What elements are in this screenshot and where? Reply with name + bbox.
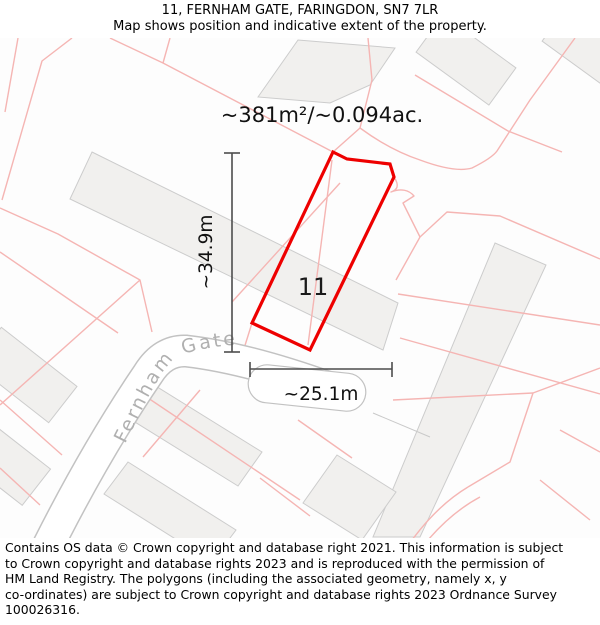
map-header: 11, FERNHAM GATE, FARINGDON, SN7 7LR Map… bbox=[0, 0, 600, 38]
property-map: Fernham Gate 11 ~381m²/~0.094ac. ~34.9m … bbox=[0, 38, 600, 538]
footer-line: HM Land Registry. The polygons (includin… bbox=[0, 571, 600, 587]
building bbox=[0, 327, 77, 422]
page-title: 11, FERNHAM GATE, FARINGDON, SN7 7LR bbox=[0, 0, 600, 19]
building bbox=[104, 462, 236, 538]
plot-number-label: 11 bbox=[298, 273, 329, 301]
building bbox=[0, 425, 51, 506]
footer-line: to Crown copyright and database rights 2… bbox=[0, 556, 600, 572]
building bbox=[416, 38, 516, 105]
vertical-dimension-label: ~34.9m bbox=[196, 215, 217, 290]
footer-line: co-ordinates) are subject to Crown copyr… bbox=[0, 587, 600, 603]
map-canvas: Fernham Gate 11 ~381m²/~0.094ac. ~34.9m … bbox=[0, 38, 600, 538]
page-subtitle: Map shows position and indicative extent… bbox=[0, 19, 600, 34]
footer-line: Contains OS data © Crown copyright and d… bbox=[0, 540, 600, 556]
horizontal-dimension-label: ~25.1m bbox=[284, 384, 359, 405]
copyright-footer: Contains OS data © Crown copyright and d… bbox=[0, 540, 600, 618]
building bbox=[258, 40, 395, 103]
area-label: ~381m²/~0.094ac. bbox=[221, 103, 423, 127]
building bbox=[542, 38, 600, 88]
building-terrace-band bbox=[70, 152, 398, 350]
footer-line: 100026316. bbox=[0, 602, 600, 618]
